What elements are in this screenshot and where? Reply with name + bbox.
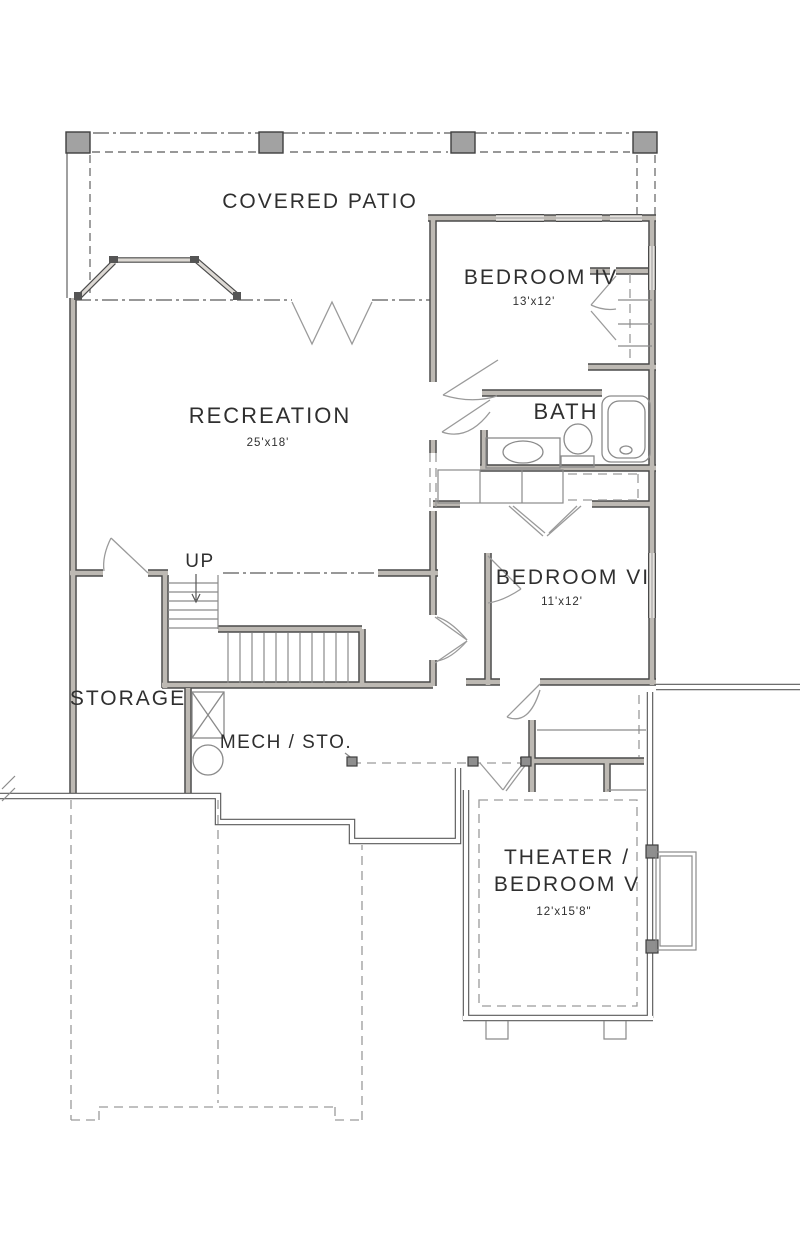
closet-boxes — [438, 300, 652, 790]
footing-stub — [604, 1021, 626, 1039]
floor-plan-page: COVERED PATIO BEDROOM IV 13'x12' RECREAT… — [0, 0, 800, 1257]
bay-window — [74, 256, 241, 300]
label-mech: MECH / STO. — [220, 732, 352, 753]
label-recreation: RECREATION — [189, 403, 352, 428]
dims-recreation: 25'x18' — [247, 437, 290, 449]
foundation-walls — [0, 687, 800, 1020]
structure-details — [2, 757, 696, 1039]
dims-theater: 12'x15'8" — [536, 906, 591, 918]
sink-basin — [503, 441, 543, 463]
label-covered-patio: COVERED PATIO — [222, 190, 418, 213]
bathtub-drain — [620, 446, 632, 454]
dims-bedroom6: 11'x12' — [541, 596, 583, 608]
water-heater — [193, 745, 223, 775]
toilet-bowl — [564, 424, 592, 454]
doors — [104, 276, 616, 791]
floor-plan-drawing: COVERED PATIO BEDROOM IV 13'x12' RECREAT… — [0, 0, 800, 1257]
label-stairs-up: UP — [185, 551, 214, 572]
media-niche — [656, 852, 696, 950]
label-bath: BATH — [533, 399, 598, 424]
footing-stub — [486, 1021, 508, 1039]
label-bedroom4: BEDROOM IV — [464, 266, 618, 289]
label-theater-line2: BEDROOM V — [494, 873, 640, 896]
bathtub-inner — [608, 401, 645, 458]
label-theater-line1: THEATER / — [504, 846, 630, 869]
label-storage: STORAGE — [70, 687, 186, 710]
label-bedroom6: BEDROOM VI — [496, 566, 650, 589]
room-labels: COVERED PATIO BEDROOM IV 13'x12' RECREAT… — [70, 190, 650, 918]
dims-bedroom4: 13'x12' — [513, 296, 556, 308]
patio-posts — [66, 132, 657, 153]
